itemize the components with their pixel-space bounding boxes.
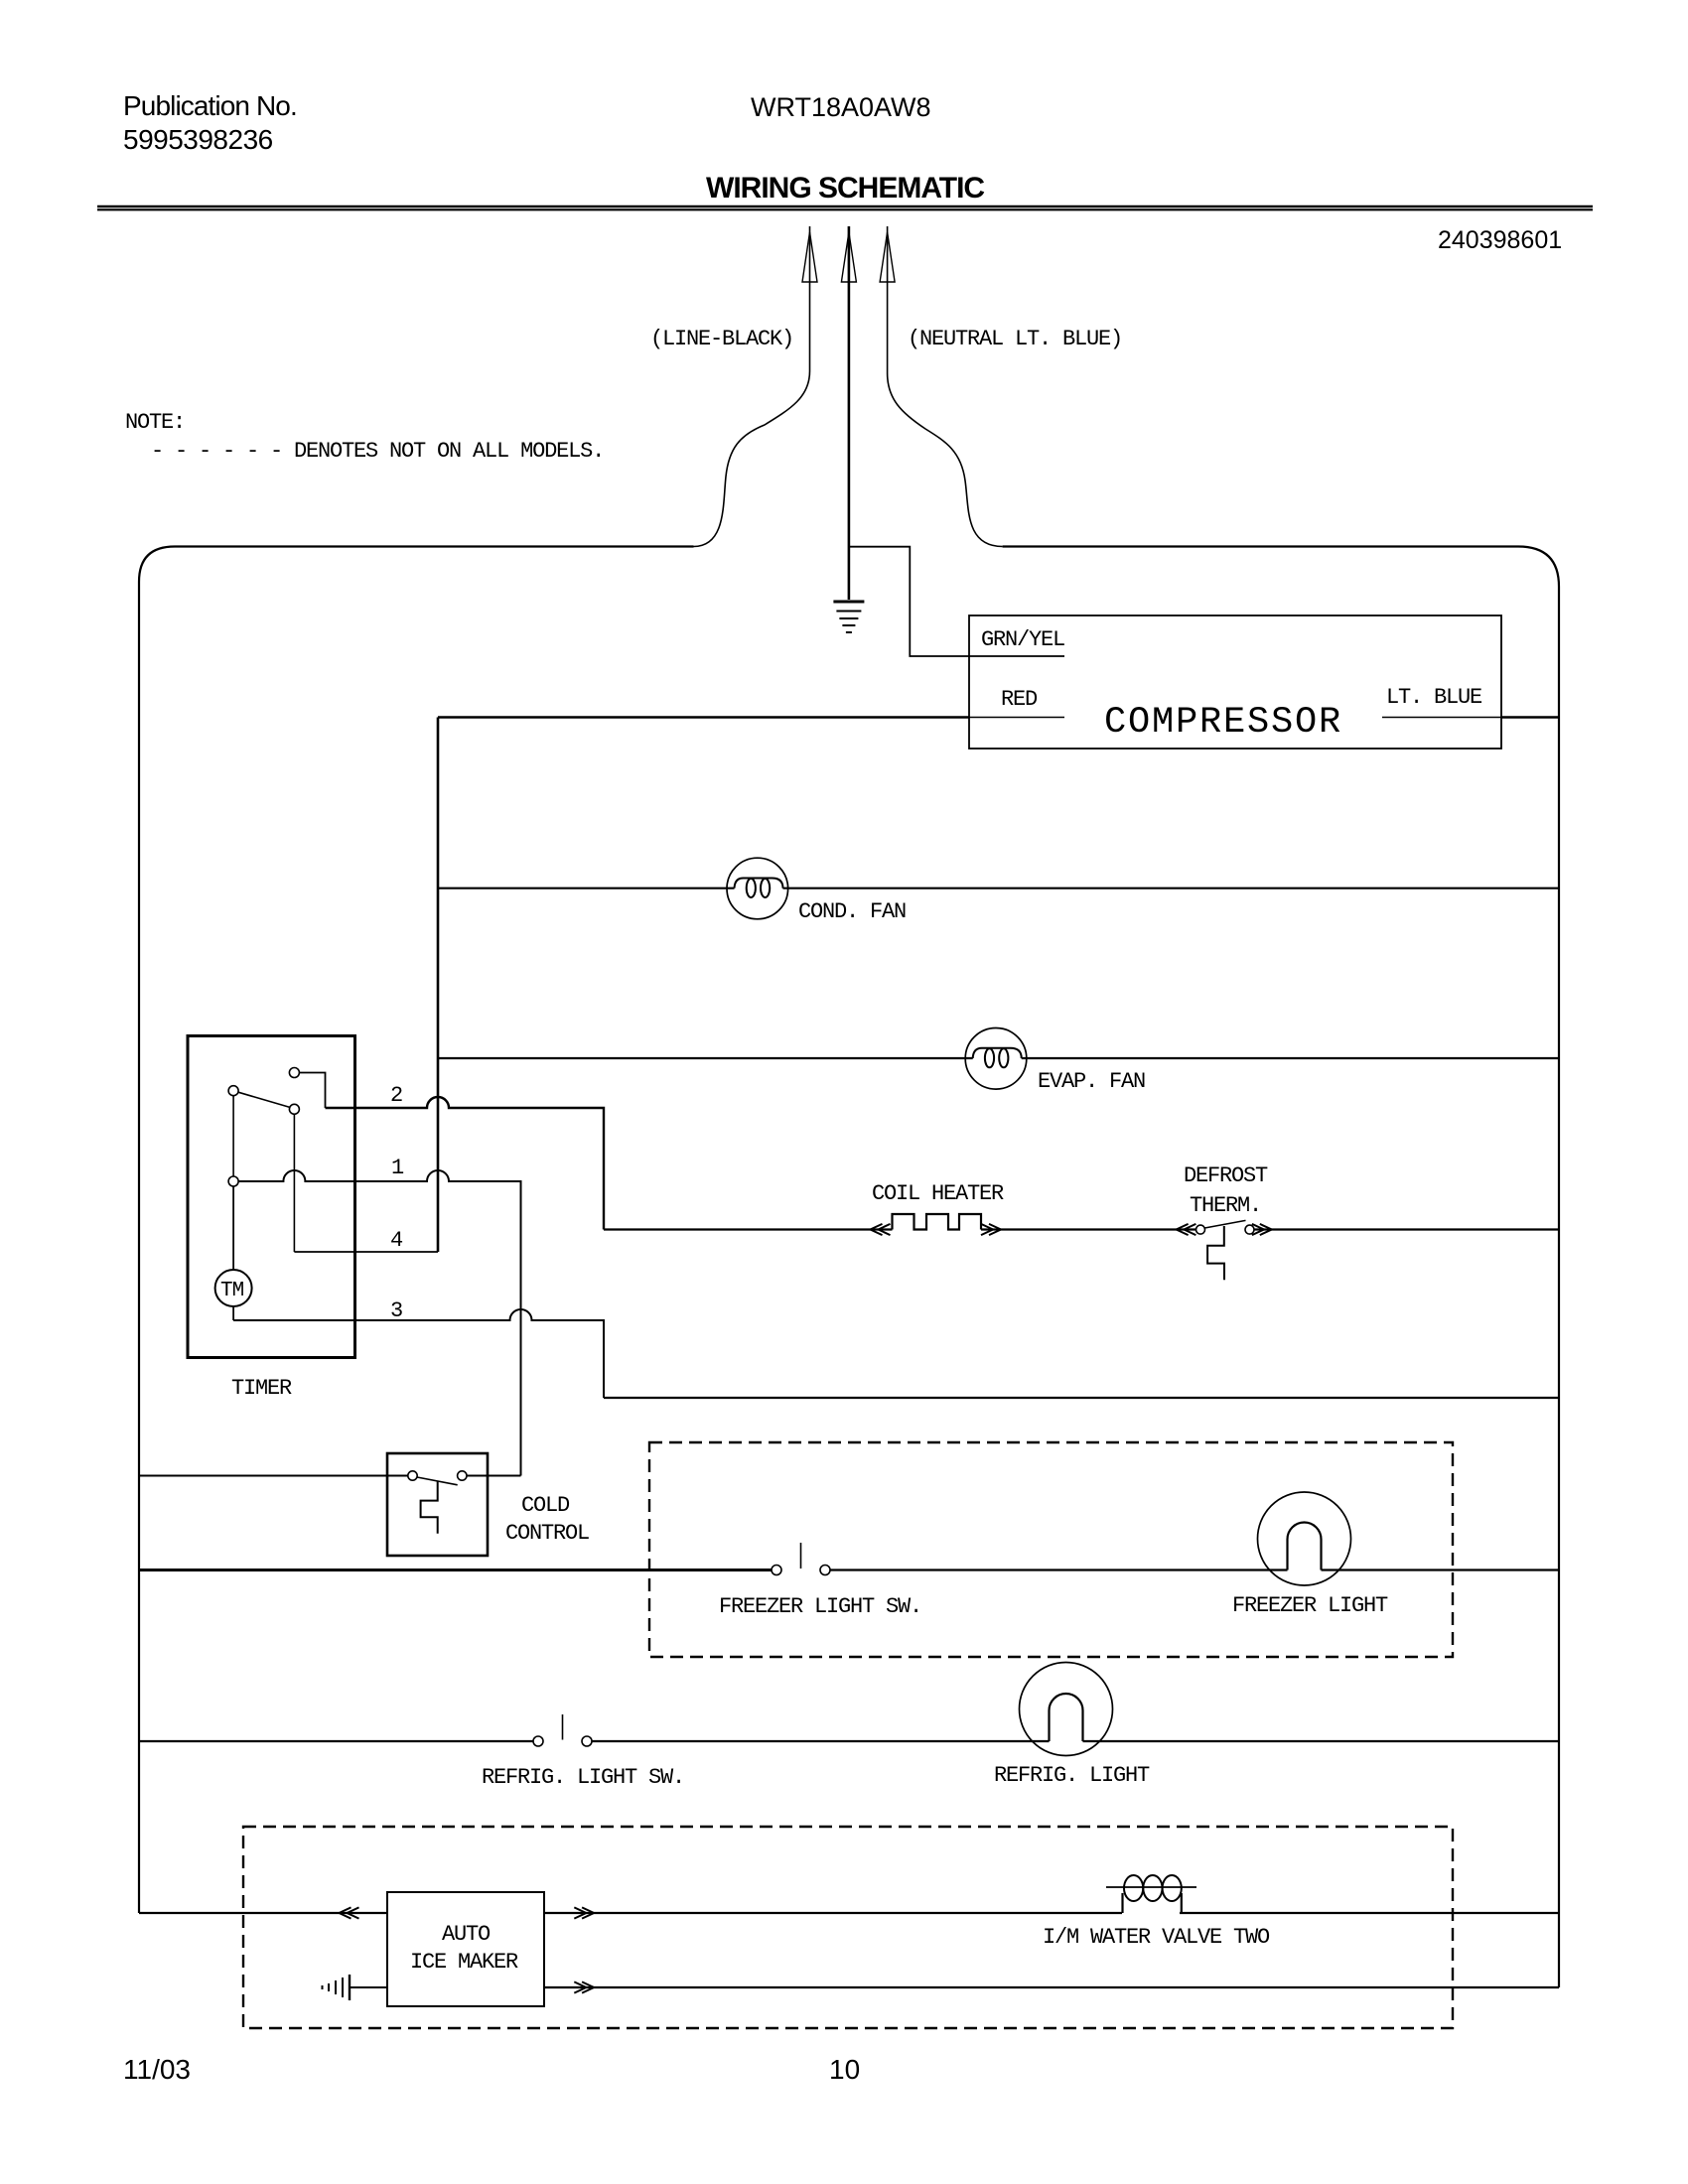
svg-text:Publication No.: Publication No. — [123, 90, 297, 121]
svg-text:DEFROST: DEFROST — [1184, 1163, 1268, 1188]
svg-text:WRT18A0AW8: WRT18A0AW8 — [751, 92, 931, 122]
svg-text:COIL HEATER: COIL HEATER — [872, 1181, 1004, 1206]
svg-text:TM: TM — [220, 1280, 244, 1302]
svg-text:FREEZER LIGHT SW.: FREEZER LIGHT SW. — [719, 1594, 921, 1619]
svg-text:10: 10 — [829, 2054, 860, 2085]
svg-text:RED: RED — [1001, 687, 1038, 712]
svg-text:WIRING SCHEMATIC: WIRING SCHEMATIC — [706, 172, 984, 205]
svg-text:AUTO: AUTO — [442, 1922, 491, 1947]
svg-text:FREEZER LIGHT: FREEZER LIGHT — [1232, 1593, 1388, 1618]
svg-text:REFRIG. LIGHT: REFRIG. LIGHT — [994, 1763, 1150, 1788]
svg-text:I/M WATER VALVE TWO: I/M WATER VALVE TWO — [1043, 1925, 1270, 1950]
svg-text:5995398236: 5995398236 — [123, 124, 273, 155]
svg-text:2: 2 — [390, 1083, 402, 1108]
svg-text:COND. FAN: COND. FAN — [798, 899, 906, 924]
svg-text:- - - - - - DENOTES NOT ON ALL: - - - - - - DENOTES NOT ON ALL MODELS. — [151, 439, 604, 464]
svg-text:TIMER: TIMER — [231, 1376, 292, 1401]
svg-text:11/03: 11/03 — [123, 2054, 191, 2085]
svg-text:NOTE:: NOTE: — [125, 410, 185, 435]
svg-text:CONTROL: CONTROL — [505, 1521, 589, 1546]
svg-text:3: 3 — [390, 1298, 402, 1323]
svg-text:LT. BLUE: LT. BLUE — [1386, 685, 1482, 710]
svg-text:REFRIG. LIGHT SW.: REFRIG. LIGHT SW. — [482, 1765, 684, 1790]
svg-text:240398601: 240398601 — [1438, 226, 1562, 254]
svg-text:EVAP. FAN: EVAP. FAN — [1038, 1069, 1145, 1094]
svg-text:COMPRESSOR: COMPRESSOR — [1104, 702, 1342, 744]
svg-text:4: 4 — [390, 1228, 403, 1253]
svg-text:1: 1 — [391, 1156, 404, 1180]
svg-text:(NEUTRAL LT. BLUE): (NEUTRAL LT. BLUE) — [908, 327, 1122, 351]
svg-text:COLD: COLD — [521, 1493, 570, 1518]
svg-text:(LINE-BLACK): (LINE-BLACK) — [650, 327, 793, 351]
svg-text:GRN/YEL: GRN/YEL — [981, 627, 1064, 652]
svg-text:ICE MAKER: ICE MAKER — [410, 1950, 518, 1975]
svg-text:THERM.: THERM. — [1190, 1193, 1261, 1218]
